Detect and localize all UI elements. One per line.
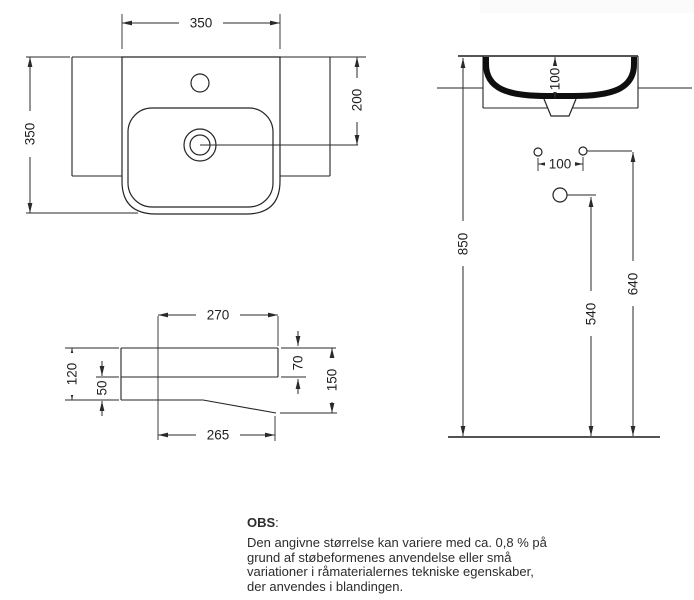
profile-body-outline [121,348,278,413]
dim-outlet-height: 540 [582,197,599,436]
dim-label-bowl-depth: 100 [548,68,563,91]
dim-label-plan-height: 350 [23,123,38,146]
dim-label-plan-drain: 200 [350,89,365,112]
dim-label-hole-spacing: 100 [549,157,572,172]
dim-rim-height: 850 [454,58,471,436]
drain-outlet-section [544,99,576,116]
dim-label-outlet-height: 540 [584,303,599,326]
dim-label-top-depth: 270 [207,308,230,323]
technical-drawing: 350 350 200 100 [0,0,694,600]
dim-bottom-depth: 265 [158,416,275,444]
dim-front-height: 120 [64,348,119,400]
dim-label-holes-height: 640 [626,273,641,296]
plan-view: 350 350 200 [21,14,366,214]
dim-holes-height: 640 [624,152,641,436]
mounting-hole-right [579,147,587,155]
note-block: OBS: Den angivne størrelse kan variere m… [247,516,597,594]
washbasin-spec-drawing: 350 350 200 100 [0,0,694,600]
note-line: Den angivne størrelse kan variere med ca… [247,536,597,550]
dim-label-front-height: 120 [65,363,80,386]
drain-outlet-circle [553,188,567,202]
dim-label-side-height: 150 [325,369,340,392]
dim-label-plan-width: 350 [190,16,213,31]
dim-plan-drain-offset: 200 [330,57,366,145]
dim-label-bottom-depth: 265 [207,428,230,443]
dim-hole-spacing: 100 [538,156,583,172]
note-heading: OBS [247,515,275,530]
front-view: 100 100 850 540 640 [437,0,694,437]
dim-side-height: 150 [280,348,340,413]
note-heading-colon: : [275,515,279,530]
dim-plan-width: 350 [122,14,280,49]
faucet-hole [191,74,209,92]
dim-label-rim-height: 850 [456,233,471,256]
note-line: variationer i råmaterialernes tekniske e… [247,565,597,579]
dim-top-depth: 270 [158,307,278,346]
dim-bottom-back: 50 [94,361,119,416]
dim-label-apron-height: 70 [291,355,306,370]
mounting-hole-left [534,148,542,156]
note-line: grund af støbeformenes anvendelse eller … [247,551,597,565]
dim-label-bottom-back: 50 [95,380,110,395]
note-line: der anvendes i blandingen. [247,580,597,594]
note-heading-row: OBS: [247,516,597,530]
faint-top-band [480,0,694,13]
profile-view: 270 120 50 70 150 [64,307,340,444]
dim-plan-height: 350 [21,57,138,213]
